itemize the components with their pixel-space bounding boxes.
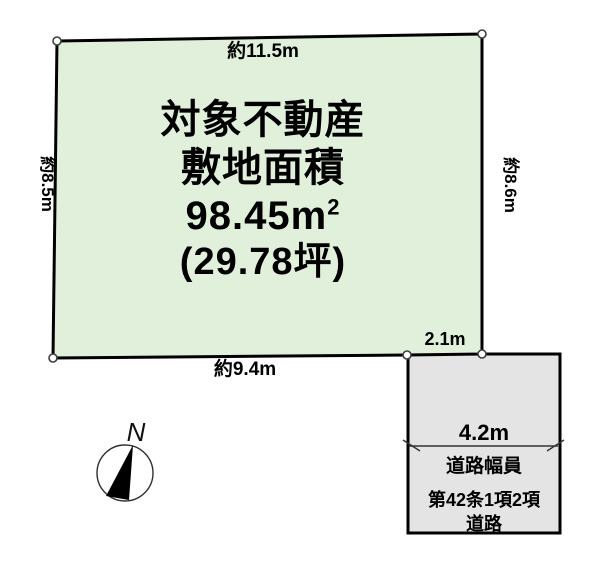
parcel-title-line2: 敷地面積 — [107, 144, 419, 192]
dimension-right: 約8.6m — [499, 135, 519, 235]
parcel-area-value: 98.45m — [186, 194, 328, 238]
site-plan-diagram: 約11.5m 約8.5m 約8.6m 約9.4m 2.1m 対象不動産 敷地面積… — [0, 0, 600, 581]
road-designation-line2: 道路 — [408, 510, 560, 536]
parcel-area-sqm: 98.45m2 — [107, 192, 419, 240]
vertex-marker — [49, 354, 57, 362]
dimension-top: 約11.5m — [183, 42, 343, 63]
road-designation-line1: 第42条1項2項 — [408, 486, 560, 512]
dimension-bottom: 約9.4m — [165, 360, 325, 381]
dimension-frontage: 2.1m — [395, 330, 495, 350]
north-compass-icon — [97, 445, 153, 501]
road-width-label: 4.2m — [408, 420, 560, 446]
vertex-marker — [53, 37, 61, 45]
parcel-title-line1: 対象不動産 — [107, 96, 419, 144]
dimension-left: 約8.5m — [36, 134, 56, 234]
north-label: N — [116, 417, 156, 448]
vertex-marker — [478, 30, 486, 38]
parcel-area-exponent: 2 — [327, 195, 340, 220]
parcel-label-block: 対象不動産 敷地面積 98.45m2 (29.78坪) — [107, 96, 419, 286]
vertex-marker — [478, 350, 486, 358]
parcel-area-tsubo: (29.78坪) — [107, 240, 419, 286]
road-caption: 道路幅員 — [408, 451, 560, 478]
vertex-marker — [403, 351, 411, 359]
